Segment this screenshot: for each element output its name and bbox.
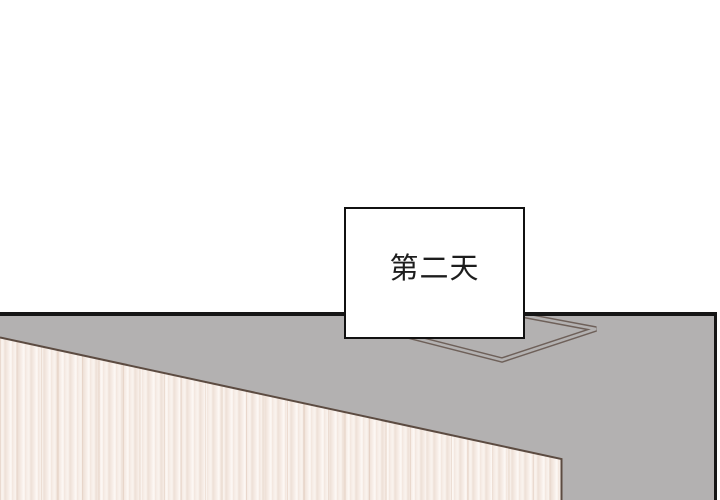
comic-panel: 第二天 [0,0,720,500]
caption-box: 第二天 [344,207,525,339]
caption-text: 第二天 [389,255,479,284]
